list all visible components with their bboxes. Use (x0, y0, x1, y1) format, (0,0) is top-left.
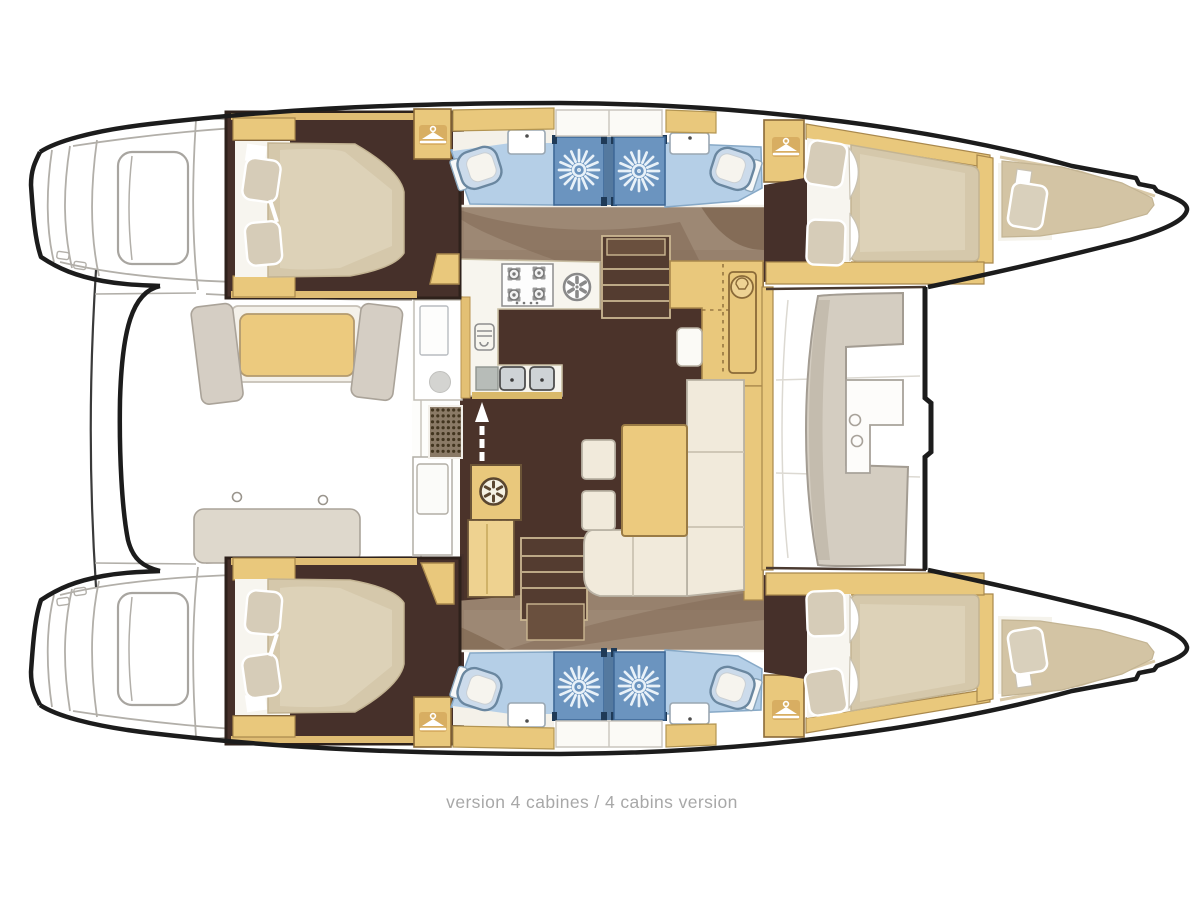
svg-text:version 4 cabines / 4 cabins v: version 4 cabines / 4 cabins version (446, 792, 738, 812)
